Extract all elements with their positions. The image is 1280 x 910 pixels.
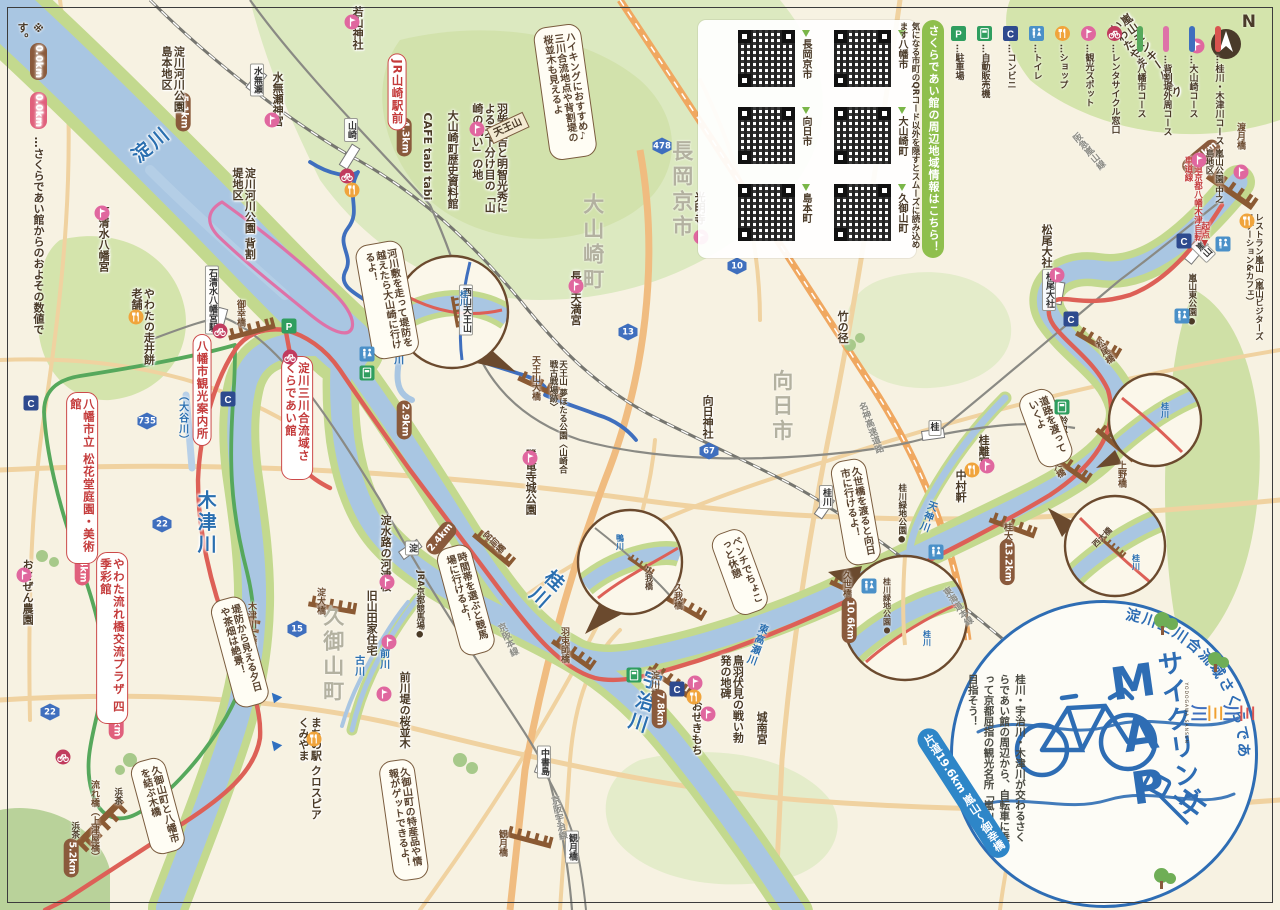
vending-icon: [627, 668, 642, 683]
poi-jr-yamazaki-ekimae: JR山崎駅前: [388, 53, 407, 130]
legend-label: …ショップ: [1058, 44, 1067, 89]
spot-icon: [382, 635, 397, 650]
legend-label: …コンビニ: [1006, 44, 1015, 89]
conbini-icon: C: [1064, 312, 1079, 327]
spot-icon: [701, 707, 716, 722]
label-kiten: 起点▼: [1199, 222, 1209, 249]
river-furukawa: 古川: [352, 655, 363, 677]
poi-muko-jinja: 向日神社: [701, 395, 713, 439]
poi-maekawa-sakura: 前川堤の桜並木: [398, 672, 410, 749]
flow-icon: [270, 739, 285, 754]
course-swatch: [1137, 26, 1143, 52]
qr-city-name: 長岡京市: [798, 39, 813, 79]
poi-restaurant-arashiyama: レストラン嵐山（嵐山ビジターズステーション&カフェ）: [1243, 213, 1262, 343]
spot-icon: [380, 575, 395, 590]
poi-takenomichi: 竹の径: [836, 311, 848, 344]
legend-label: …八幡市コース: [1136, 55, 1145, 118]
qr-code: [834, 30, 891, 87]
note-badge-pink: 0.0km: [30, 92, 47, 129]
bridge-nagarebashi: 流れ橋（上津屋橋）: [89, 780, 99, 888]
poi-yamazaki-battle-site: 羽柴秀吉と明智光秀による天下分け目の「山崎の戦い」の地: [471, 103, 508, 213]
conbini-icon: C: [1177, 234, 1192, 249]
note-prefix: ※: [32, 22, 45, 35]
qr-panel: 八幡市長岡京市大山崎町向日市久御山町島本町: [698, 20, 916, 258]
logo-char: 三: [1238, 683, 1254, 745]
legend-label: …駐車場: [954, 44, 963, 80]
legend-item-parking: P…駐車場: [948, 26, 968, 80]
parking-icon: P: [282, 319, 297, 334]
logo-char: 川: [1189, 683, 1205, 745]
station-minase: 水無瀬: [250, 64, 264, 97]
svg-text:C: C: [27, 399, 34, 410]
toilet-icon: [929, 545, 944, 560]
spot-icon: [1234, 165, 1249, 180]
legend-item-toilet: …トイレ: [1026, 26, 1046, 80]
bridge-kangetsukyo: 観月橋: [497, 830, 507, 857]
rental-icon: [56, 750, 71, 765]
bridge-hazukashi: 羽束師橋: [559, 627, 569, 663]
conbini-icon: C: [670, 682, 685, 697]
logo-char: 三: [1206, 683, 1222, 745]
poi-yumehotaru-park: 天王山 夢ほたる公園〈山崎合戦古戦場跡〉: [547, 360, 566, 480]
poi-sewaritei-area: 淀川河川公園 背割堤地区: [231, 168, 256, 263]
inset-b-kamogawa: 鴨川: [615, 534, 624, 550]
distance-29: 2.9km: [397, 400, 412, 439]
spot-icon: [17, 568, 32, 583]
legend-item-conbini: C…コンビニ: [1000, 26, 1020, 89]
triangle-icon: [802, 30, 810, 37]
area-kumiyama: 久御山町: [320, 605, 344, 705]
poi-cafe-tabitabi: CAFE tabi tabi: [421, 113, 433, 208]
svg-text:C: C: [1006, 29, 1013, 40]
spot-icon: [523, 451, 538, 466]
svg-text:C: C: [1180, 237, 1187, 248]
legend-item-shop: …ショップ: [1052, 26, 1072, 89]
toilet-icon: [862, 579, 877, 594]
shop-icon: [1240, 214, 1255, 229]
svg-text:C: C: [224, 395, 231, 406]
rental-icon: [1107, 26, 1122, 41]
distance-note: ※ 0.0km 0.0km …さくらであい館からのおよその数値です。: [14, 22, 47, 352]
flow-icon: [270, 691, 285, 706]
qr-item: 長岡京市: [738, 30, 813, 87]
bridge-togetsukyo: 渡月橋: [1235, 123, 1245, 150]
qr-label: 長岡京市: [798, 30, 813, 87]
poi-jonangu: 城南宮: [755, 712, 767, 745]
legend-label: …観光スポット: [1084, 44, 1093, 107]
note-badge-brown: 0.0km: [30, 43, 47, 80]
distance-katsura-ohashi: 13.2km: [1000, 539, 1015, 585]
station-chushojima: 中書島: [537, 746, 551, 779]
spot-icon: [470, 122, 485, 137]
poi-hamacha-1: 浜茶: [112, 788, 122, 805]
qr-code: [834, 184, 891, 241]
spot-icon: [377, 687, 392, 702]
compass: N: [1198, 14, 1258, 74]
qr-label: 向日市: [798, 107, 813, 164]
shop-icon: [687, 690, 702, 705]
spot-icon: [345, 15, 360, 30]
toilet-icon: [360, 347, 375, 362]
qr-code: [834, 107, 891, 164]
qr-label: 島本町: [798, 184, 813, 241]
station-katsuragawa: 桂川: [819, 485, 833, 509]
toilet-icon: [1216, 237, 1231, 252]
legend-label: …トイレ: [1032, 44, 1041, 80]
poi-hamacha-2: 浜茶: [69, 822, 79, 839]
river-kizugawa: 木津川: [194, 490, 215, 556]
cycling-map-page: ※ 0.0km 0.0km …さくらであい館からのおよその数値です。 P…駐車場…: [0, 0, 1280, 910]
shop-icon: [345, 183, 360, 198]
conbini-icon: C: [1003, 26, 1018, 41]
shop-icon: [1055, 26, 1070, 41]
qr-item: 向日市: [738, 107, 813, 164]
poi-shikisaikan: やわた流れ橋交流プラザ 四季彩館: [96, 552, 128, 724]
river-maekawa: 前川: [377, 648, 388, 670]
legend-label: …背割堤外周コース: [1162, 55, 1171, 136]
qr-code: [738, 107, 795, 164]
legend-item-course: …背割堤外周コース: [1156, 26, 1176, 136]
svg-text:C: C: [1067, 315, 1074, 326]
poi-toba-fushimi-monument: 鳥羽伏見の戦い勃発の地碑: [719, 655, 744, 745]
spot-icon: [688, 676, 703, 691]
toilet-icon: [1029, 26, 1044, 41]
spot-icon: [1081, 26, 1096, 41]
poi-shimamoto-area: 淀川河川公園 島本地区: [160, 46, 185, 126]
legend-item-spot: …観光スポット: [1078, 26, 1098, 107]
qr-note: 気になる市町のQRコード以外を隠すとスムーズに読み込めます: [897, 22, 921, 256]
logo-caption: YODOGAWA SANSEN: [1183, 683, 1188, 745]
qr-city-name: 島本町: [798, 193, 813, 223]
bridge-uenobashi: 上野橋: [1116, 461, 1126, 488]
sansen-logo: 三川三川 YODOGAWA SANSEN: [1183, 683, 1254, 745]
rental-icon: [283, 350, 298, 365]
qr-banner: さくらであい館の周辺地域情報はこちら！: [922, 20, 944, 258]
qr-code: [738, 184, 795, 241]
poi-hashiirimochi: やわたの走井餅老舗: [130, 288, 155, 368]
compass-n-label: N: [1242, 12, 1256, 32]
spot-icon: [95, 206, 110, 221]
toilet-icon: [1175, 309, 1190, 324]
area-muko: 向日市: [769, 370, 793, 445]
distance-nagarebashi: 5.2km: [64, 838, 79, 877]
vending-icon: [977, 26, 992, 41]
area-oyamazaki: 大山崎町: [580, 193, 604, 293]
triangle-icon: [802, 107, 810, 114]
svg-text:C: C: [673, 685, 680, 696]
spot-icon: [1192, 153, 1207, 168]
poi-kyoto-racecourse: JRA京都競馬場●: [414, 571, 424, 640]
station-yamazaki: 山崎: [344, 118, 358, 142]
qr-code: [738, 30, 795, 87]
inset-e-katsuragawa: 桂川: [1131, 554, 1140, 570]
poi-yamada-house: 旧山田家住宅: [365, 590, 377, 656]
vending-icon: [1055, 400, 1070, 415]
bridge-tennozan: 天王山大橋: [530, 356, 540, 401]
inset-a-katsuragawa: 桂川: [459, 290, 468, 306]
rental-icon: [340, 169, 355, 184]
inset-c-katsuragawa: 桂川: [922, 630, 931, 646]
poi-katsuragawa-ryokuchi: 桂川緑地公園●: [896, 484, 906, 545]
shop-icon: [307, 732, 322, 747]
inset-c-ryokuchi: 桂川緑地公園●: [882, 578, 891, 635]
station-katsura: 桂: [928, 420, 941, 436]
bridge-kuzebashi: 久世橋: [841, 571, 851, 598]
spot-icon: [569, 279, 584, 294]
poi-matsuo-taisha: 松尾大社: [1040, 224, 1052, 268]
distance-kuzebashi: 10.6km: [842, 597, 857, 643]
station-yodo: 淀: [405, 541, 419, 556]
legend-item-vending: …自動販売機: [974, 26, 994, 98]
rental-icon: [213, 324, 228, 339]
bridge-gokobashi: 御幸橋: [235, 300, 245, 327]
legend-label: …レンタサイクル窓口: [1110, 44, 1119, 134]
poi-sakura-deaikan: 淀川三川合流域さくらであい館: [281, 356, 313, 480]
course-swatch: [1163, 26, 1169, 52]
spot-icon: [1050, 268, 1065, 283]
triangle-icon: [802, 184, 810, 191]
distance-yodogawabashi: 7.8km: [652, 689, 667, 728]
qr-item: 島本町: [738, 184, 813, 241]
spot-icon: [265, 113, 280, 128]
course-swatch: [1189, 26, 1195, 52]
river-otanigawa: （大谷川）: [176, 391, 187, 446]
spot-icon: [980, 459, 995, 474]
area-nagaokakyo: 長岡京市: [669, 140, 693, 240]
logo-char: 川: [1222, 683, 1238, 745]
shop-icon: [129, 310, 144, 325]
bridge-kugabashi: 久我橋: [672, 583, 682, 610]
legend-label: …自動販売機: [980, 44, 989, 98]
conbini-icon: C: [221, 392, 236, 407]
legend-item-course: …八幡市コース: [1130, 26, 1150, 118]
svg-text:P: P: [286, 322, 293, 333]
inset-d-katsuragawa: 桂川: [1160, 402, 1169, 418]
bridge-yodo-ohashi: 淀大橋: [315, 588, 325, 615]
shop-icon: [965, 463, 980, 478]
legend-item-rental: …レンタサイクル窓口: [1104, 26, 1124, 134]
vending-icon: [360, 366, 375, 381]
legend-label: …大山崎コース: [1188, 55, 1197, 118]
poi-yawata-tourist-info: 八幡市観光案内所: [193, 334, 212, 446]
inset-b-kugabashi: 久我橋: [644, 566, 653, 590]
poi-oyamazaki-museum: 大山崎町歴史資料館: [446, 110, 458, 230]
legend: P…駐車場…自動販売機C…コンビニ…トイレ…ショップ…観光スポット…レンタサイク…: [948, 26, 1228, 145]
poi-shokado-garden: 八幡市立 松花堂庭園・美術館: [66, 392, 98, 564]
svg-text:P: P: [955, 29, 962, 40]
qr-city-name: 向日市: [798, 116, 813, 146]
title-stamp: 淀川三川合流域さくらであい館 サイクリングMAP 桂川・宇治川・木津川が交わるさ…: [950, 600, 1258, 908]
conbini-icon: C: [24, 396, 39, 411]
parking-icon: P: [951, 26, 966, 41]
